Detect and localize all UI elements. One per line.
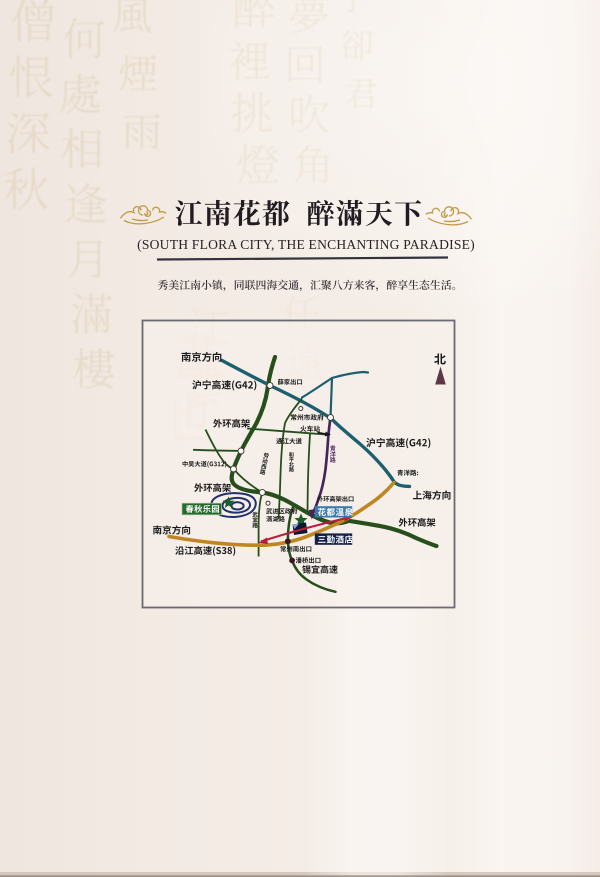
svg-text:(SOUTH FLORA CITY, THE ENCHANT: (SOUTH FLORA CITY, THE ENCHANTING PARADI… (137, 237, 475, 253)
